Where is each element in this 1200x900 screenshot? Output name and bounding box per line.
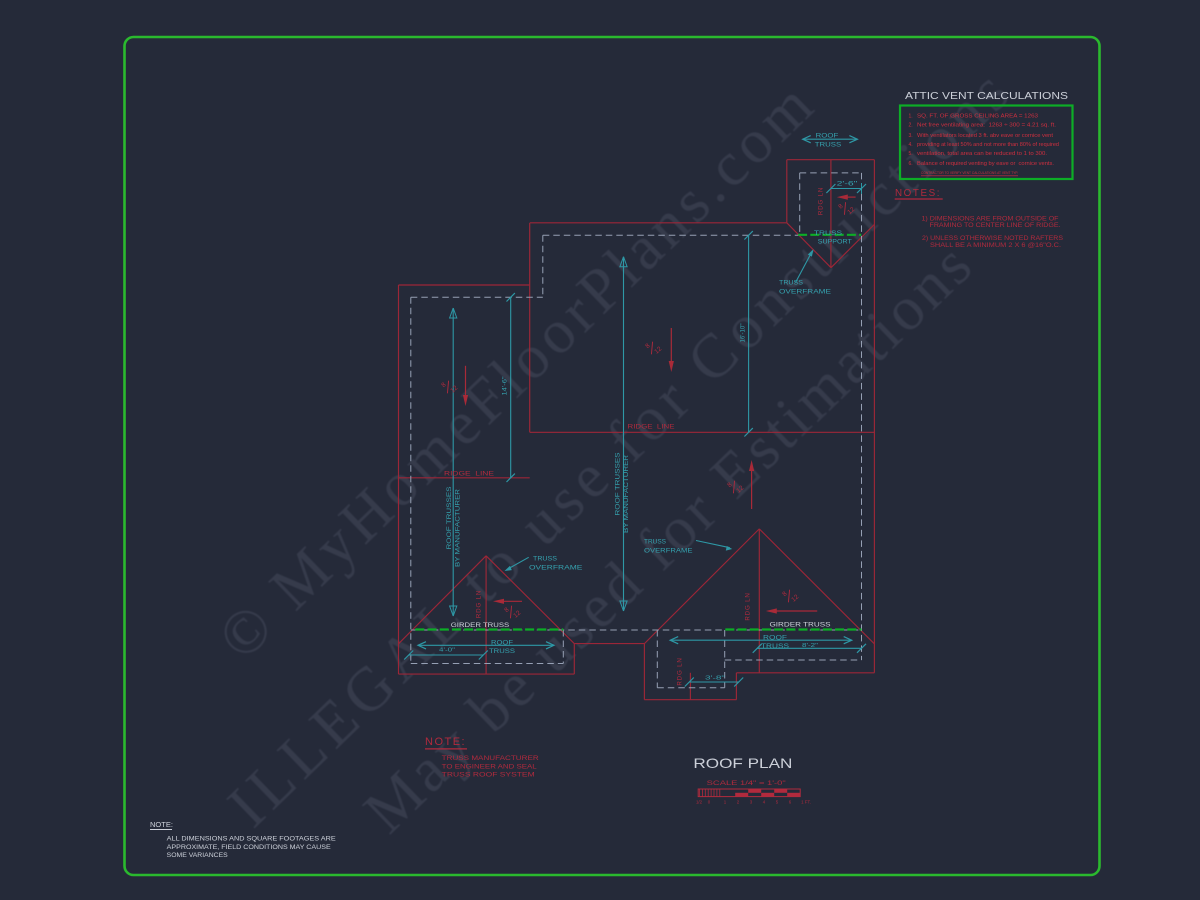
svg-text:2'-6": 2'-6" — [837, 181, 858, 188]
svg-text:RIDGE LINE: RIDGE LINE — [444, 471, 495, 478]
svg-text:providing at least 50% and not: providing at least 50% and not more than… — [917, 142, 1059, 148]
svg-text:ROOF PLAN: ROOF PLAN — [693, 755, 792, 771]
svg-text:APPROXIMATE, FIELD CONDITIONS: APPROXIMATE, FIELD CONDITIONS MAY CAUSE — [167, 844, 332, 851]
svg-text:NOTES:: NOTES: — [895, 188, 941, 199]
svg-text:ventilation, total area can be: ventilation, total area can be reduced t… — [917, 151, 1047, 157]
svg-text:Balance of required venting by: Balance of required venting by eave or c… — [917, 161, 1054, 167]
svg-text:TO ENGINEER AND SEAL: TO ENGINEER AND SEAL — [442, 763, 537, 770]
svg-text:TRUSS: TRUSS — [761, 643, 790, 650]
svg-text:TRUSS: TRUSS — [815, 142, 842, 149]
svg-text:GIRDER TRUSS: GIRDER TRUSS — [451, 622, 510, 629]
svg-text:NOTE:: NOTE: — [425, 736, 466, 748]
svg-text:SHALL BE A MINIMUM 2 X 6 @16"O: SHALL BE A MINIMUM 2 X 6 @16"O.C. — [930, 243, 1061, 249]
svg-text:2) UNLESS OTHERWISE NOTED RAFT: 2) UNLESS OTHERWISE NOTED RAFTERS — [922, 236, 1063, 242]
svg-text:5.: 5. — [909, 151, 913, 157]
svg-text:ATTIC VENT CALCULATIONS: ATTIC VENT CALCULATIONS — [905, 91, 1068, 102]
svg-text:1/2: 1/2 — [696, 800, 703, 805]
svg-text:4'-0": 4'-0" — [439, 648, 455, 654]
svg-text:BY MANUFACTURER: BY MANUFACTURER — [455, 489, 462, 567]
svg-text:4.: 4. — [909, 142, 913, 148]
svg-text:16'-10": 16'-10" — [740, 324, 747, 343]
svg-text:3'-8": 3'-8" — [705, 676, 725, 682]
svg-text:1) DIMENSIONS ARE FROM OUTSIDE: 1) DIMENSIONS ARE FROM OUTSIDE OF — [922, 216, 1059, 222]
svg-text:ROOF: ROOF — [491, 640, 513, 647]
svg-text:BY MANUFACTURER: BY MANUFACTURER — [623, 455, 630, 533]
svg-text:TRUSS ROOF SYSTEM: TRUSS ROOF SYSTEM — [442, 772, 535, 779]
svg-text:SUPPORT: SUPPORT — [818, 239, 852, 246]
svg-text:TRUSS MANUFACTURER: TRUSS MANUFACTURER — [442, 755, 539, 762]
svg-text:FRAMING TO CENTER LINE OF RIDG: FRAMING TO CENTER LINE OF RIDGE. — [930, 223, 1061, 229]
svg-text:TRUSS: TRUSS — [533, 556, 558, 563]
svg-text:TRUSS: TRUSS — [489, 648, 516, 655]
svg-text:TRUSS: TRUSS — [644, 539, 667, 546]
svg-text:TRUSS: TRUSS — [779, 280, 804, 287]
svg-text:RDG LN: RDG LN — [677, 657, 684, 685]
svg-text:SCALE 1/4" = 1'-0": SCALE 1/4" = 1'-0" — [707, 780, 787, 787]
svg-text:6.: 6. — [909, 161, 913, 167]
svg-text:ROOF TRUSSES: ROOF TRUSSES — [615, 453, 622, 516]
svg-text:RDG LN: RDG LN — [476, 590, 483, 618]
svg-text:ROOF: ROOF — [763, 635, 787, 642]
svg-text:TRUSS: TRUSS — [814, 230, 843, 237]
svg-text:RIDGE LINE: RIDGE LINE — [628, 424, 676, 431]
svg-text:1 FT.: 1 FT. — [801, 800, 811, 805]
svg-text:1.: 1. — [909, 114, 913, 120]
svg-text:ROOF: ROOF — [816, 133, 839, 140]
svg-text:SQ. FT. OF GROSS CEILING AREA: SQ. FT. OF GROSS CEILING AREA = 1263 — [917, 114, 1038, 120]
svg-text:OVERFRAME: OVERFRAME — [644, 548, 693, 555]
svg-text:2.: 2. — [909, 123, 913, 129]
svg-text:GIRDER TRUSS: GIRDER TRUSS — [770, 622, 832, 629]
svg-text:Net free ventilating area: 12: Net free ventilating area: 1263 ÷ 300 = … — [917, 123, 1056, 129]
svg-text:3.: 3. — [909, 133, 913, 139]
svg-text:OVERFRAME: OVERFRAME — [779, 289, 832, 296]
svg-text:RDG LN: RDG LN — [818, 187, 825, 215]
svg-text:CONTRACTOR TO VERIFY VENT CALC: CONTRACTOR TO VERIFY VENT CALCULATIONS A… — [921, 171, 1018, 175]
svg-text:NOTE:: NOTE: — [150, 820, 173, 829]
svg-text:SOME VARIANCES: SOME VARIANCES — [167, 852, 229, 859]
svg-text:With ventilators located 3 ft.: With ventilators located 3 ft. abv eave … — [917, 133, 1054, 139]
svg-text:RDG LN: RDG LN — [745, 592, 752, 620]
svg-text:ALL DIMENSIONS AND SQUARE FOOT: ALL DIMENSIONS AND SQUARE FOOTAGES ARE — [167, 836, 337, 843]
svg-text:14'-6": 14'-6" — [502, 377, 509, 396]
svg-text:ROOF TRUSSES: ROOF TRUSSES — [446, 487, 453, 550]
svg-text:OVERFRAME: OVERFRAME — [529, 565, 583, 572]
